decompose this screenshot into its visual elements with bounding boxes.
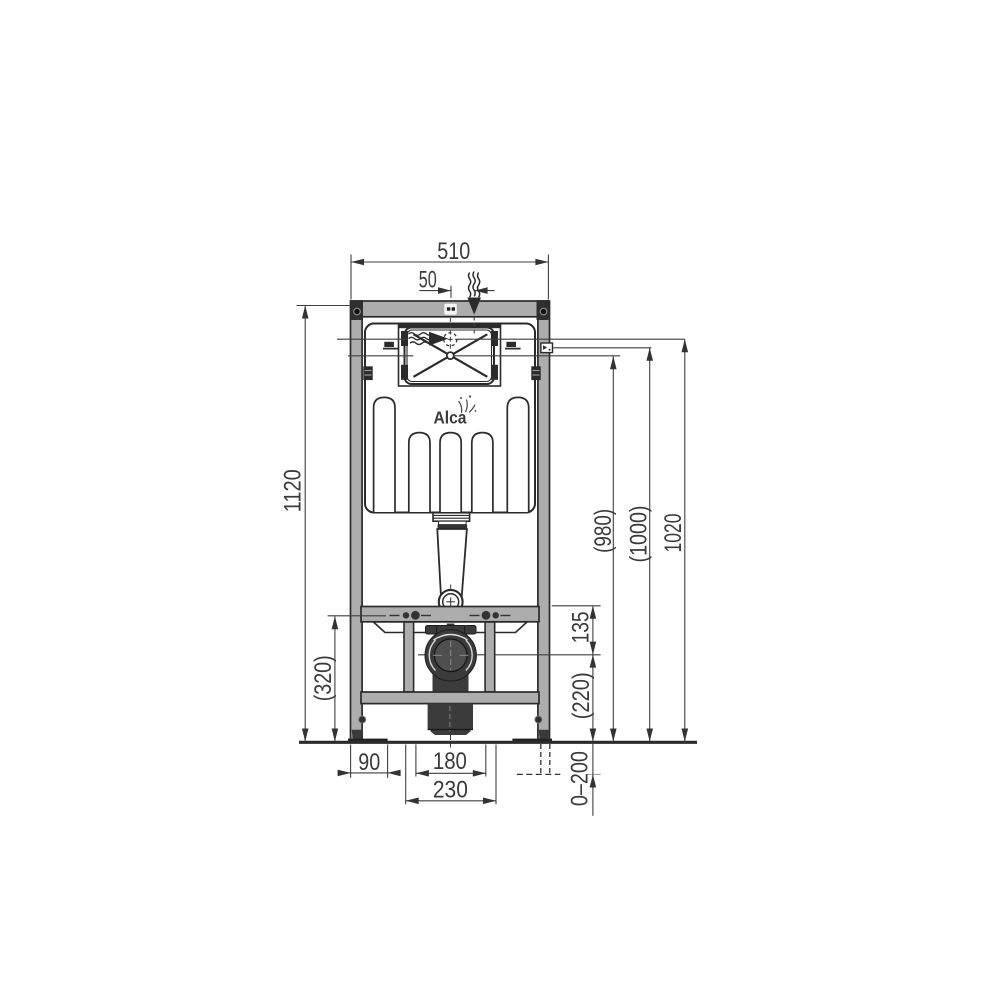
svg-text:0–200: 0–200 <box>566 751 593 806</box>
svg-text:1020: 1020 <box>660 514 687 553</box>
svg-text:(220): (220) <box>568 672 595 719</box>
svg-text:180: 180 <box>433 748 467 775</box>
svg-text:(980): (980) <box>590 509 617 553</box>
svg-text:1120: 1120 <box>280 469 307 512</box>
svg-text:50: 50 <box>419 266 437 293</box>
svg-text:(1000): (1000) <box>626 506 653 563</box>
svg-text:(320): (320) <box>310 655 337 701</box>
svg-text:230: 230 <box>433 776 468 803</box>
svg-text:510: 510 <box>437 238 470 265</box>
svg-text:135: 135 <box>568 611 595 643</box>
svg-text:90: 90 <box>358 749 380 776</box>
